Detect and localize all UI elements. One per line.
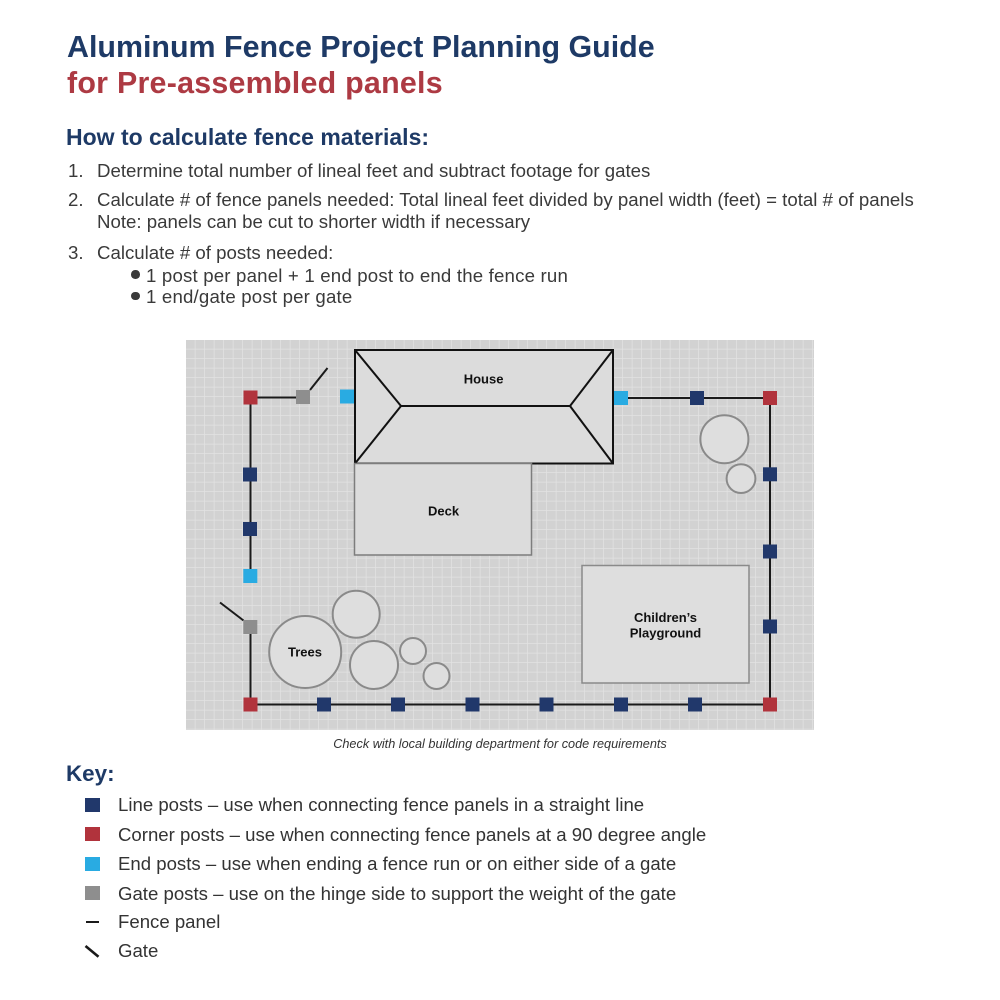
svg-text:Trees: Trees <box>288 645 322 660</box>
svg-text:Children’s: Children’s <box>634 610 697 625</box>
svg-text:House: House <box>464 371 504 386</box>
svg-text:Deck: Deck <box>428 504 460 519</box>
svg-text:Playground: Playground <box>630 626 702 641</box>
